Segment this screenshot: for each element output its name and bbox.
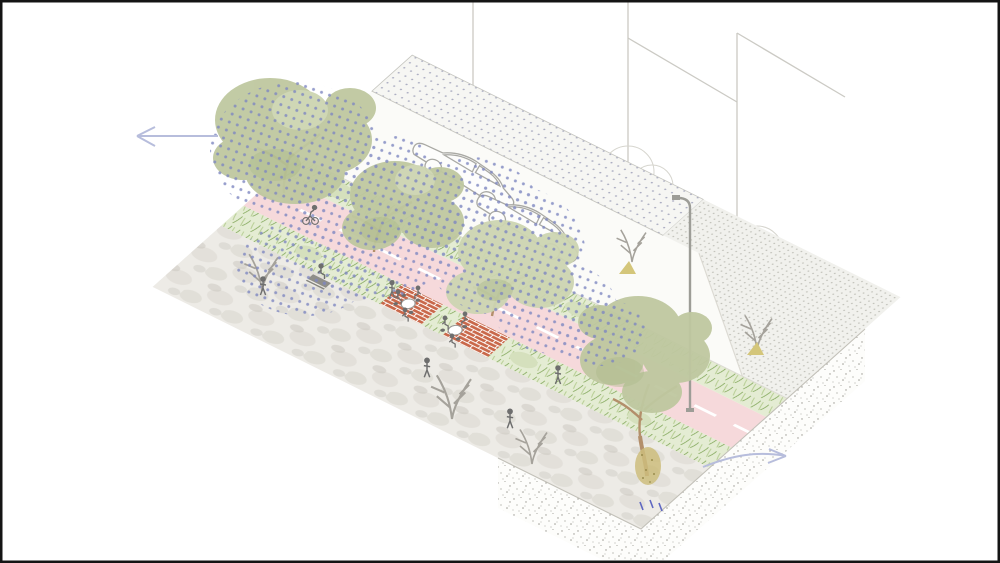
illustration-canvas	[0, 0, 1000, 563]
street-axonometric-drawing	[0, 0, 1000, 563]
